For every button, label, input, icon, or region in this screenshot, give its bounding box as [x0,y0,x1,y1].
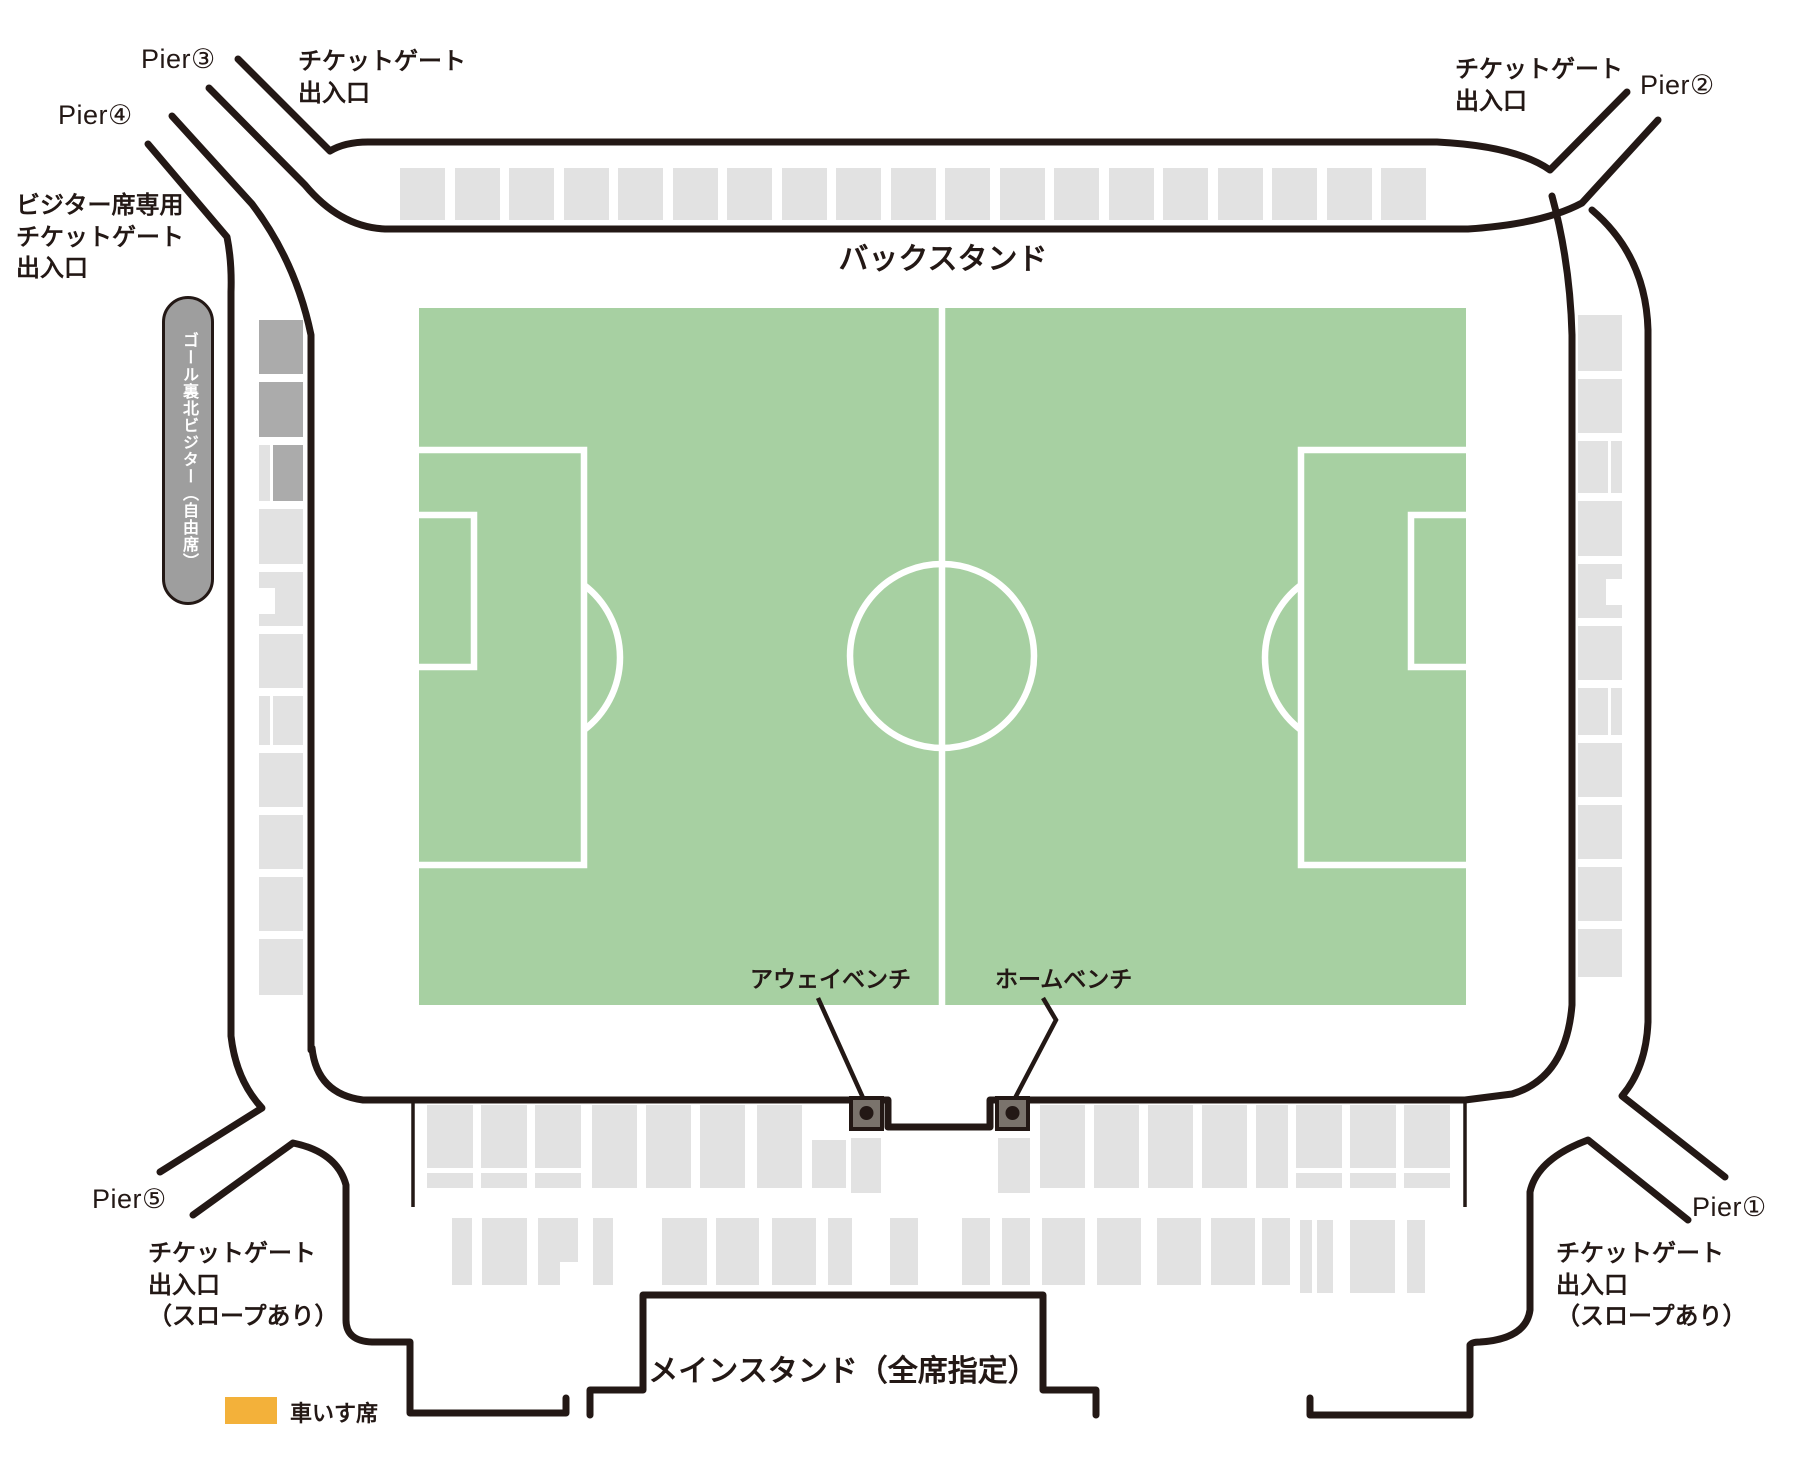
seat-block-visitor [273,445,303,501]
seats-back-stand [400,168,1426,220]
gate-label-top-right: チケットゲート 出入口 [1455,54,1623,117]
seat-block [1262,1218,1290,1285]
seat-block [259,877,303,931]
wheelchair-legend-swatch [225,1397,277,1424]
seat-block-visitor [259,382,303,437]
seat-block [812,1140,846,1188]
seat-block [1578,805,1622,859]
seat-block [1578,688,1608,735]
seat-block [851,1138,881,1193]
seat-block [1148,1105,1193,1188]
seat-block [1404,1105,1450,1168]
back-stand-label: バックスタンド [793,240,1093,280]
pier-5-label: Pier⑤ [92,1182,167,1218]
seat-block [400,168,445,220]
seat-block [891,168,936,220]
seat-block-notch [1606,579,1622,605]
seat-block [890,1218,918,1285]
seat-block [1163,168,1208,220]
seat-block [427,1105,473,1168]
pier-4-label: Pier④ [58,98,133,134]
seat-block [828,1218,852,1285]
away-bench-label: アウェイベンチ [750,964,911,994]
seat-block [1042,1218,1085,1285]
seat-block [1327,168,1372,220]
seat-block [1381,168,1426,220]
stadium-seating-map: Pier③ Pier④ チケットゲート 出入口 ビジター席専用 チケットゲート … [0,0,1800,1470]
outer-wall-left-with-pier4-pier5 [148,144,262,1172]
seat-block [1611,688,1622,735]
away-bench-leader-line [818,998,864,1100]
seat-block [962,1218,990,1285]
away-bench-dot [860,1106,874,1120]
seat-block [455,168,500,220]
seat-block [259,509,303,564]
seat-block [1097,1218,1141,1285]
seat-block [1040,1105,1085,1188]
seat-block-visitor [259,320,303,374]
gate-label-top-left: チケットゲート 出入口 [298,46,466,109]
seat-block [836,168,881,220]
seat-block [259,753,303,807]
wheelchair-legend-label: 車いす席 [290,1399,378,1428]
seat-block [646,1105,691,1188]
pier-3-label: Pier③ [141,42,216,78]
seat-block [259,939,303,995]
seat-block [1054,168,1099,220]
seat-block [772,1218,816,1285]
seat-block [1002,1218,1030,1285]
seat-block [1202,1105,1247,1188]
gate-label-bottom-right: チケットゲート 出入口 （スロープあり） [1556,1238,1747,1333]
seat-block [757,1105,802,1188]
seats-main-stand-lower [452,1218,1425,1293]
seat-block [1407,1220,1425,1293]
seat-block [1578,315,1622,371]
seat-block [1218,168,1263,220]
seats-visitor-north [259,320,303,995]
visitor-section-pill: ゴール裏北ビジター（自由席） [162,296,214,605]
seat-block [1300,1220,1312,1293]
seat-block [716,1218,759,1285]
seat-block [1404,1173,1450,1188]
seat-block-notch [259,588,275,614]
seat-block [1272,168,1317,220]
seat-block [1578,867,1622,921]
seat-block [1578,501,1622,556]
seat-block [1578,379,1622,433]
seats-east-side [1578,315,1622,977]
visitor-gate-label: ビジター席専用 チケットゲート 出入口 [16,190,184,285]
seat-block [259,696,270,745]
seat-block [1350,1173,1396,1188]
seat-block [782,168,827,220]
pier-2-label: Pier② [1640,68,1715,104]
seat-block [482,1218,527,1285]
seat-block [673,168,718,220]
seat-block [1578,626,1622,680]
seat-block [259,634,303,688]
seat-block [1000,168,1045,220]
seat-block [1611,441,1622,493]
seat-block [1350,1220,1395,1293]
seats-main-stand-upper [427,1105,1450,1193]
seat-block [662,1218,707,1285]
seat-block [1578,743,1622,797]
home-bench-label: ホームベンチ [995,964,1132,994]
gate-label-bottom-left: チケットゲート 出入口 （スロープあり） [148,1238,339,1333]
seat-block [593,1218,613,1285]
seat-block [1350,1105,1396,1168]
team-benches [818,998,1056,1129]
seat-block [452,1218,472,1285]
seat-block [509,168,554,220]
seat-block [1578,441,1608,493]
seat-block [1157,1218,1201,1285]
seat-block [427,1173,473,1188]
seat-block [998,1138,1030,1193]
pitch [419,308,1466,1005]
seat-block-notch [560,1262,578,1285]
seat-block [592,1105,637,1188]
seat-block [259,445,270,501]
seat-block [1109,168,1154,220]
seat-block [1094,1105,1139,1188]
seat-block [700,1105,745,1188]
seat-block [564,168,609,220]
seat-block [1578,929,1622,977]
seat-block [481,1105,527,1168]
seat-block [618,168,663,220]
seat-block [1296,1105,1342,1168]
pier-1-label: Pier① [1692,1190,1767,1226]
seat-block [535,1105,581,1168]
seat-block [1296,1173,1342,1188]
seat-block [945,168,990,220]
seat-block [1317,1220,1333,1293]
home-bench-leader-line [1014,998,1056,1100]
seat-block [535,1173,581,1188]
seat-block [259,815,303,869]
seat-block [1211,1218,1255,1285]
seat-block [481,1173,527,1188]
seat-block [727,168,772,220]
seat-block [1256,1105,1288,1188]
main-stand-label: メインスタンド（全席指定） [643,1352,1043,1392]
home-bench-dot [1006,1106,1020,1120]
seat-block [273,696,303,745]
